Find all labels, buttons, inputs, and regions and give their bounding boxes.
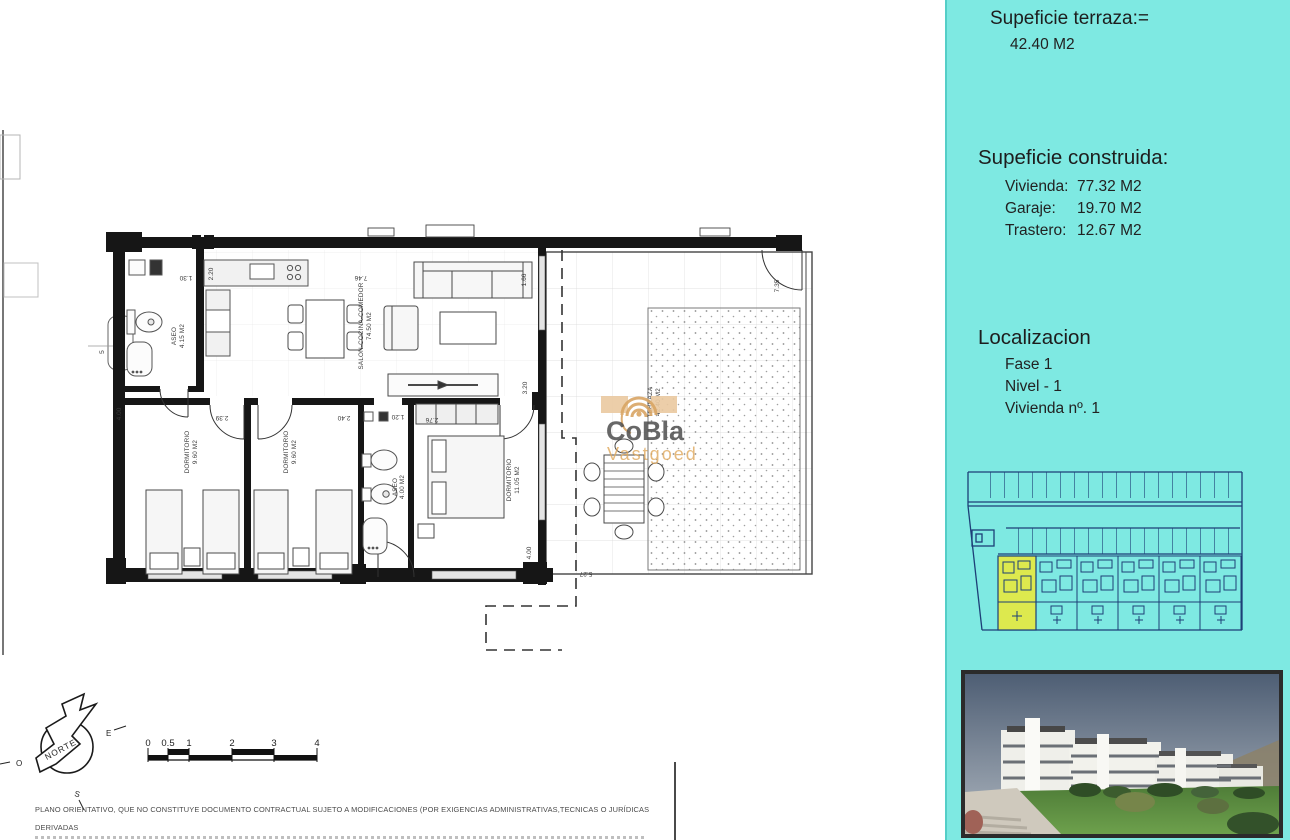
svg-text:3: 3 xyxy=(271,738,276,749)
tv-console xyxy=(388,374,498,396)
built-row-garaje: Garaje: 19.70 M2 xyxy=(1005,198,1142,220)
svg-text:DORMITORIO: DORMITORIO xyxy=(506,459,513,502)
terrace-area-title: Supeficie terraza:= xyxy=(990,8,1149,30)
bedroom2-beds xyxy=(254,490,352,574)
svg-text:S: S xyxy=(74,789,81,799)
svg-text:5.27: 5.27 xyxy=(579,570,592,577)
svg-text:2.76: 2.76 xyxy=(425,416,438,423)
svg-text:E: E xyxy=(106,729,111,738)
terrace-area-value: 42.40 M2 xyxy=(1010,36,1075,54)
disclaimer-cut-line xyxy=(35,836,647,839)
built-area-rows: Vivienda: 77.32 M2 Garaje: 19.70 M2 Tras… xyxy=(1005,176,1142,242)
svg-text:CoBla: CoBla xyxy=(606,416,685,446)
svg-text:5: 5 xyxy=(99,350,106,354)
location-row-vivienda: Vivienda nº. 1 xyxy=(1005,398,1100,420)
svg-text:74.50 M2: 74.50 M2 xyxy=(366,312,373,340)
svg-text:9.60 M2: 9.60 M2 xyxy=(192,440,199,464)
disclaimer-text: PLANO ORIENTATIVO, QUE NO CONSTITUYE DOC… xyxy=(35,801,685,840)
svg-text:DORMITORIO: DORMITORIO xyxy=(283,431,290,474)
sofa xyxy=(414,262,532,298)
bedroom3-bed xyxy=(416,404,504,538)
svg-text:SALON-COCINA-COMEDOR: SALON-COCINA-COMEDOR xyxy=(358,282,365,369)
bedroom1-beds xyxy=(146,490,239,574)
disclaimer-line-1: PLANO ORIENTATIVO, QUE NO CONSTITUYE DOC… xyxy=(35,801,685,836)
svg-text:2.20: 2.20 xyxy=(208,267,215,280)
svg-text:1.20: 1.20 xyxy=(391,413,404,420)
location-row-fase: Fase 1 xyxy=(1005,354,1100,376)
location-rows: Fase 1 Nivel - 1 Vivienda nº. 1 xyxy=(1005,354,1100,420)
svg-text:4.00: 4.00 xyxy=(116,407,123,420)
svg-text:2: 2 xyxy=(229,738,234,749)
svg-text:1.66: 1.66 xyxy=(521,273,528,286)
project-photo xyxy=(961,670,1283,838)
svg-text:3.20: 3.20 xyxy=(522,381,529,394)
svg-text:1.30: 1.30 xyxy=(179,274,192,281)
info-panel: Supeficie terraza:= 42.40 M2 Supeficie c… xyxy=(945,0,1290,840)
svg-text:DORMITORIO: DORMITORIO xyxy=(184,431,191,474)
built-row-trastero: Trastero: 12.67 M2 xyxy=(1005,220,1142,242)
svg-text:4.15 M2: 4.15 M2 xyxy=(179,324,186,348)
svg-text:1: 1 xyxy=(186,738,191,749)
svg-text:Vastgoed: Vastgoed xyxy=(607,444,698,464)
plan-page: ASEO 4.15 M2 SALON-COCINA-COMEDOR 74.50 … xyxy=(0,0,1290,840)
scale-bar: 0 0.5 1 2 3 4 xyxy=(145,738,319,762)
photo-tower xyxy=(1025,718,1040,792)
site-key-plan xyxy=(962,458,1248,656)
svg-text:4.00: 4.00 xyxy=(526,546,533,559)
svg-text:7.46: 7.46 xyxy=(354,274,367,281)
svg-text:11.05 M2: 11.05 M2 xyxy=(514,466,521,494)
north-compass: NORTE E O S xyxy=(0,694,126,810)
svg-text:ASEO: ASEO xyxy=(171,327,178,345)
floor-plan: ASEO 4.15 M2 SALON-COCINA-COMEDOR 74.50 … xyxy=(0,0,950,840)
built-row-vivienda: Vivienda: 77.32 M2 xyxy=(1005,176,1142,198)
highlighted-unit xyxy=(998,556,1036,630)
svg-text:4.00 M2: 4.00 M2 xyxy=(399,475,406,499)
built-area-title: Supeficie construida: xyxy=(978,146,1168,170)
svg-text:2.40: 2.40 xyxy=(337,414,350,421)
svg-text:0: 0 xyxy=(145,738,150,749)
location-row-nivel: Nivel - 1 xyxy=(1005,376,1100,398)
svg-text:O: O xyxy=(16,759,22,768)
armchair xyxy=(384,306,418,350)
svg-text:ASEO: ASEO xyxy=(392,478,399,496)
location-title: Localizacion xyxy=(978,326,1091,350)
aseo1-fixtures xyxy=(127,260,162,376)
coffee-table xyxy=(440,312,496,344)
svg-text:9.60 M2: 9.60 M2 xyxy=(291,440,298,464)
svg-text:2.39: 2.39 xyxy=(215,414,228,421)
svg-text:4: 4 xyxy=(314,738,319,749)
svg-text:0.5: 0.5 xyxy=(161,738,174,749)
svg-text:7.35: 7.35 xyxy=(774,279,781,292)
